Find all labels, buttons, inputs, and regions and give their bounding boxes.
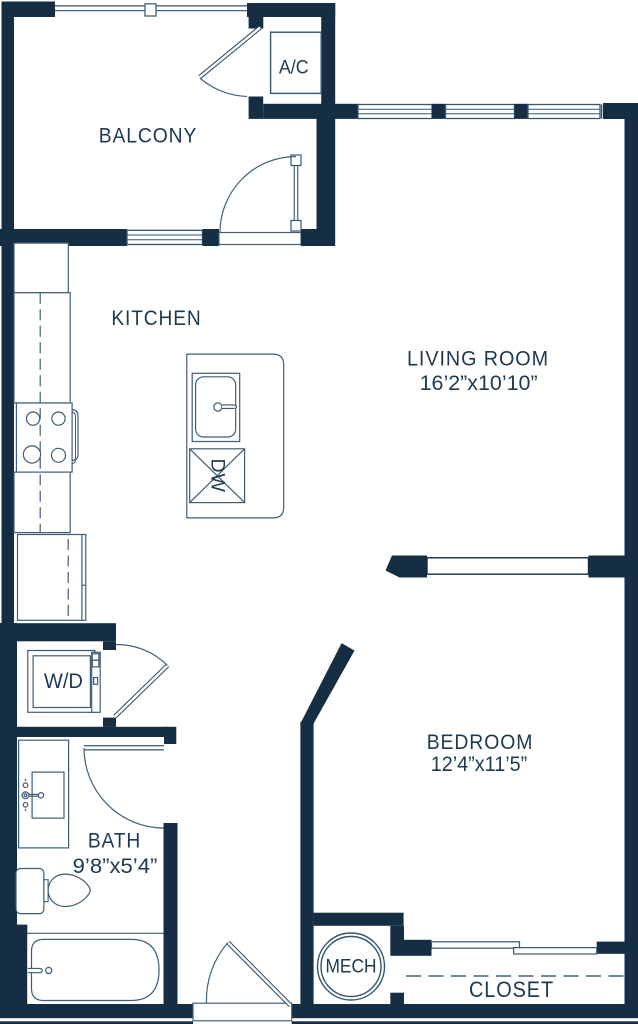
svg-text:CLOSET: CLOSET xyxy=(469,977,554,1002)
svg-text:DW: DW xyxy=(206,458,228,493)
svg-text:BATH: BATH xyxy=(88,829,141,853)
svg-text:9’8”x5’4”: 9’8”x5’4” xyxy=(73,854,158,878)
svg-text:W/D: W/D xyxy=(44,670,83,693)
svg-text:KITCHEN: KITCHEN xyxy=(111,306,201,330)
svg-text:BEDROOM: BEDROOM xyxy=(427,730,534,754)
svg-text:LIVING ROOM: LIVING ROOM xyxy=(407,346,549,370)
svg-text:12’4”x11’5”: 12’4”x11’5” xyxy=(431,752,528,776)
svg-text:MECH: MECH xyxy=(326,957,377,978)
svg-text:16’2”x10’10”: 16’2”x10’10” xyxy=(420,371,538,395)
svg-text:A/C: A/C xyxy=(279,57,309,79)
svg-text:BALCONY: BALCONY xyxy=(99,124,198,148)
